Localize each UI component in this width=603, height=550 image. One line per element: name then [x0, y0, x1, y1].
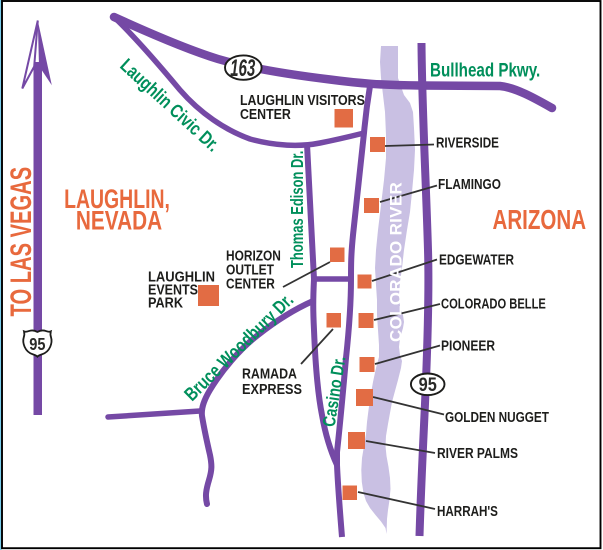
svg-text:RIVER PALMS: RIVER PALMS: [437, 445, 518, 461]
svg-text:EDGEWATER: EDGEWATER: [439, 251, 514, 268]
svg-text:PIONEER: PIONEER: [441, 337, 495, 353]
svg-text:FLAMINGO: FLAMINGO: [438, 176, 501, 193]
svg-text:TO LAS VEGAS: TO LAS VEGAS: [5, 167, 38, 317]
svg-text:COLORADO RIVER: COLORADO RIVER: [387, 182, 406, 342]
svg-text:163: 163: [230, 56, 255, 82]
svg-text:ARIZONA: ARIZONA: [493, 205, 587, 236]
svg-text:CENTER: CENTER: [226, 275, 275, 292]
svg-text:PARK: PARK: [148, 295, 183, 311]
svg-text:Thomas Edison Dr.: Thomas Edison Dr.: [288, 151, 308, 268]
svg-text:Bullhead Pkwy.: Bullhead Pkwy.: [430, 59, 540, 81]
svg-text:RIVERSIDE: RIVERSIDE: [436, 134, 499, 151]
svg-text:EXPRESS: EXPRESS: [242, 381, 302, 397]
svg-text:COLORADO BELLE: COLORADO BELLE: [441, 295, 546, 312]
svg-text:95: 95: [419, 374, 437, 395]
svg-text:GOLDEN NUGGET: GOLDEN NUGGET: [445, 409, 550, 426]
svg-text:95: 95: [29, 335, 45, 355]
svg-text:NEVADA: NEVADA: [76, 206, 162, 236]
svg-text:HARRAH'S: HARRAH'S: [437, 503, 498, 520]
svg-text:CENTER: CENTER: [240, 106, 291, 122]
svg-text:RAMADA: RAMADA: [242, 365, 297, 381]
